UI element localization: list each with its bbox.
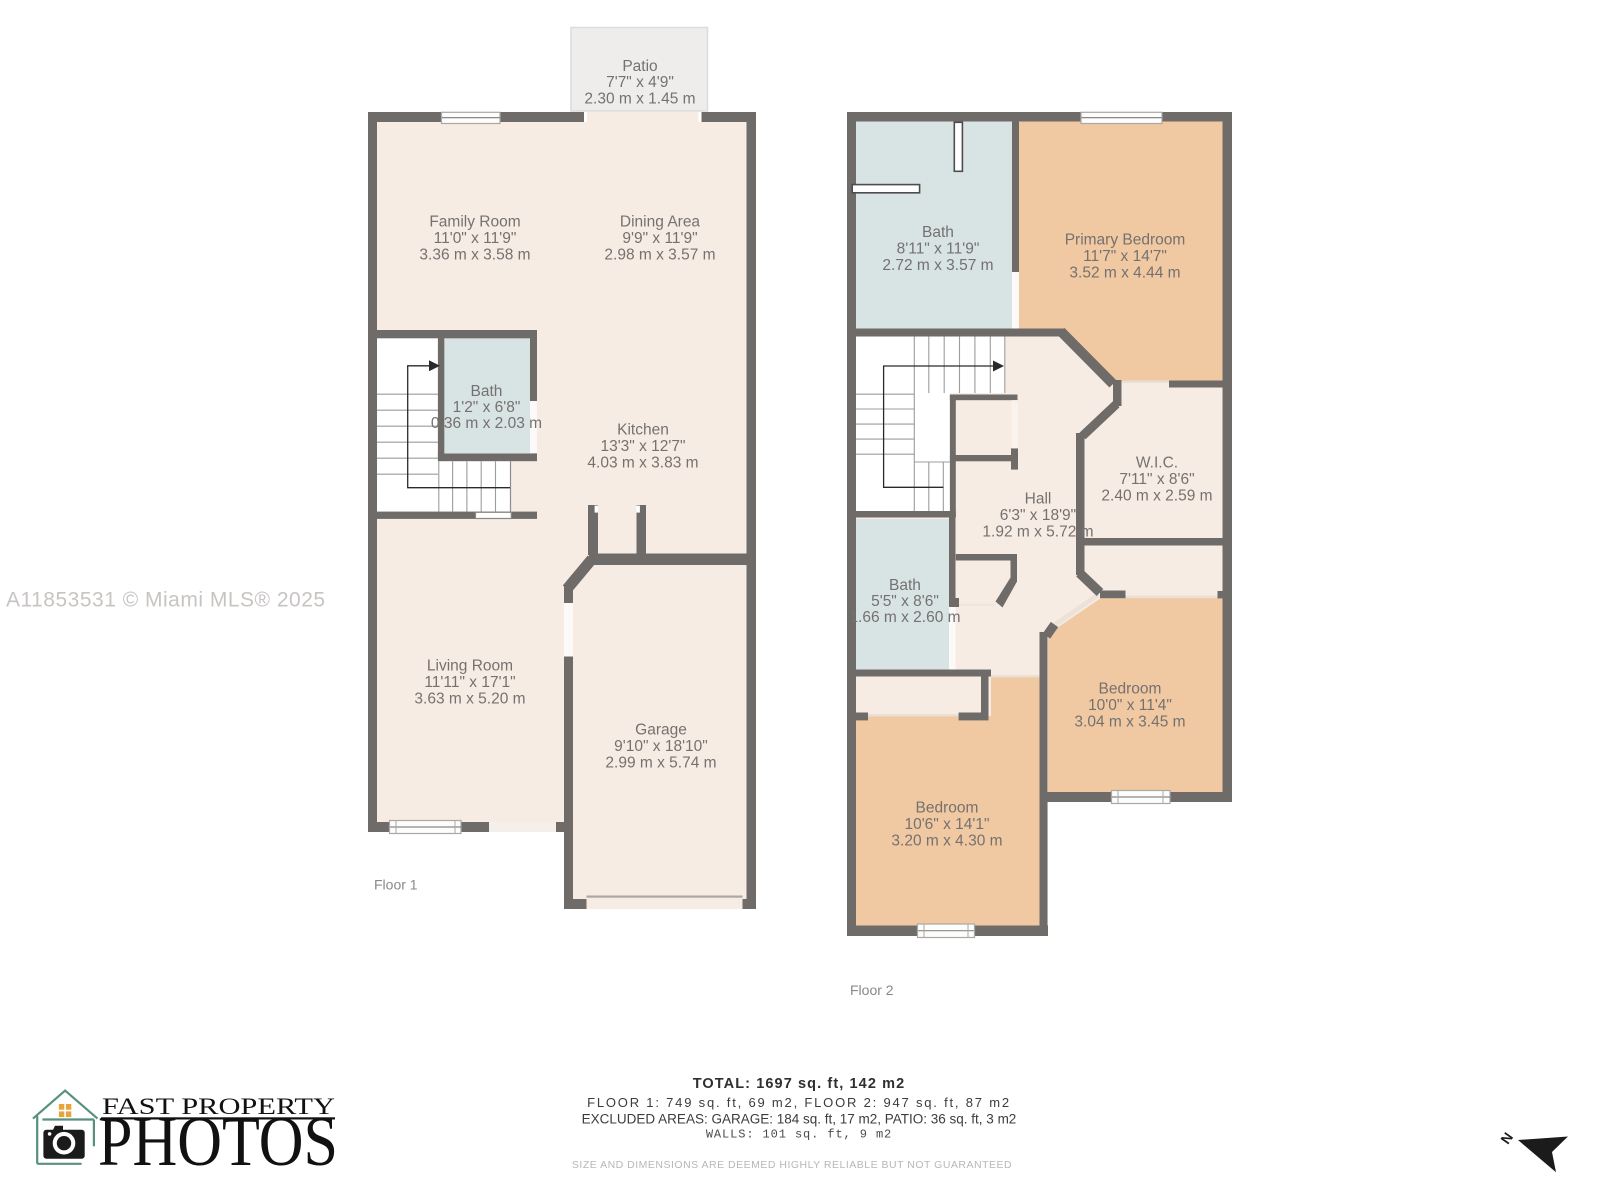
- svg-text:2.30 m x 1.45 m: 2.30 m x 1.45 m: [584, 91, 695, 108]
- svg-text:2.98 m x 3.57 m: 2.98 m x 3.57 m: [604, 247, 715, 264]
- svg-text:5'5" x 8'6": 5'5" x 8'6": [871, 593, 939, 610]
- svg-text:SIZE AND DIMENSIONS ARE DEEMED: SIZE AND DIMENSIONS ARE DEEMED HIGHLY RE…: [572, 1159, 1012, 1171]
- svg-text:0.36 m x 2.03 m: 0.36 m x 2.03 m: [431, 415, 542, 432]
- svg-text:WALLS: 101 sq. ft, 9 m2: WALLS: 101 sq. ft, 9 m2: [706, 1128, 892, 1142]
- svg-text:Family Room: Family Room: [429, 214, 520, 231]
- svg-text:Bath: Bath: [471, 383, 503, 400]
- svg-text:3.20 m x 4.30 m: 3.20 m x 4.30 m: [891, 833, 1002, 850]
- svg-text:7'11" x 8'6": 7'11" x 8'6": [1119, 471, 1194, 488]
- svg-text:N: N: [1497, 1129, 1516, 1146]
- svg-text:11'11" x 17'1": 11'11" x 17'1": [424, 674, 515, 691]
- svg-text:Patio: Patio: [622, 58, 657, 75]
- svg-text:PHOTOS: PHOTOS: [98, 1103, 338, 1181]
- svg-text:8'11" x 11'9": 8'11" x 11'9": [897, 241, 980, 258]
- svg-text:Bedroom: Bedroom: [1099, 681, 1162, 698]
- svg-text:10'0" x 11'4": 10'0" x 11'4": [1088, 697, 1172, 714]
- svg-text:Bath: Bath: [889, 577, 921, 594]
- svg-text:W.I.C.: W.I.C.: [1136, 455, 1178, 472]
- svg-text:Primary Bedroom: Primary Bedroom: [1065, 232, 1186, 249]
- svg-text:Bedroom: Bedroom: [916, 800, 979, 817]
- svg-text:6'3" x 18'9": 6'3" x 18'9": [1000, 507, 1076, 524]
- svg-text:Dining Area: Dining Area: [620, 214, 701, 231]
- svg-text:TOTAL: 1697 sq. ft, 142 m2: TOTAL: 1697 sq. ft, 142 m2: [693, 1076, 906, 1092]
- svg-text:1.66 m x 2.60 m: 1.66 m x 2.60 m: [849, 609, 960, 626]
- svg-text:Kitchen: Kitchen: [617, 422, 669, 439]
- svg-text:Floor 1: Floor 1: [374, 877, 418, 893]
- svg-text:11'0" x 11'9": 11'0" x 11'9": [434, 230, 517, 247]
- svg-text:4.03 m x 3.83 m: 4.03 m x 3.83 m: [587, 455, 698, 472]
- svg-text:1'2" x 6'8": 1'2" x 6'8": [453, 399, 521, 416]
- svg-text:2.72 m x 3.57 m: 2.72 m x 3.57 m: [882, 257, 993, 274]
- svg-text:Floor 2: Floor 2: [850, 982, 894, 998]
- svg-text:FLOOR 1: 749 sq. ft, 69 m2, FL: FLOOR 1: 749 sq. ft, 69 m2, FLOOR 2: 947…: [587, 1095, 1011, 1110]
- svg-text:3.52 m x 4.44 m: 3.52 m x 4.44 m: [1069, 265, 1180, 282]
- svg-text:9'9" x 11'9": 9'9" x 11'9": [622, 230, 697, 247]
- svg-text:1.92 m x 5.72 m: 1.92 m x 5.72 m: [982, 524, 1093, 541]
- svg-text:3.63 m x 5.20 m: 3.63 m x 5.20 m: [414, 691, 525, 708]
- svg-text:3.04 m x 3.45 m: 3.04 m x 3.45 m: [1074, 714, 1185, 731]
- svg-text:Hall: Hall: [1025, 491, 1052, 508]
- svg-text:A11853531 © Miami MLS® 2025: A11853531 © Miami MLS® 2025: [6, 589, 326, 612]
- svg-text:2.40 m x 2.59 m: 2.40 m x 2.59 m: [1101, 488, 1212, 505]
- svg-text:10'6" x 14'1": 10'6" x 14'1": [904, 816, 989, 833]
- svg-text:9'10" x 18'10": 9'10" x 18'10": [614, 738, 708, 755]
- svg-text:Garage: Garage: [635, 722, 687, 739]
- svg-text:13'3" x 12'7": 13'3" x 12'7": [600, 438, 685, 455]
- svg-text:EXCLUDED AREAS: GARAGE: 184 sq: EXCLUDED AREAS: GARAGE: 184 sq. ft, 17 m…: [582, 1112, 1017, 1127]
- svg-text:Living Room: Living Room: [427, 658, 513, 675]
- svg-text:3.36 m x 3.58 m: 3.36 m x 3.58 m: [419, 247, 530, 264]
- svg-text:11'7" x 14'7": 11'7" x 14'7": [1083, 248, 1167, 265]
- svg-text:Bath: Bath: [922, 224, 954, 241]
- svg-text:2.99 m x 5.74 m: 2.99 m x 5.74 m: [605, 755, 716, 772]
- svg-text:7'7" x 4'9": 7'7" x 4'9": [606, 74, 674, 91]
